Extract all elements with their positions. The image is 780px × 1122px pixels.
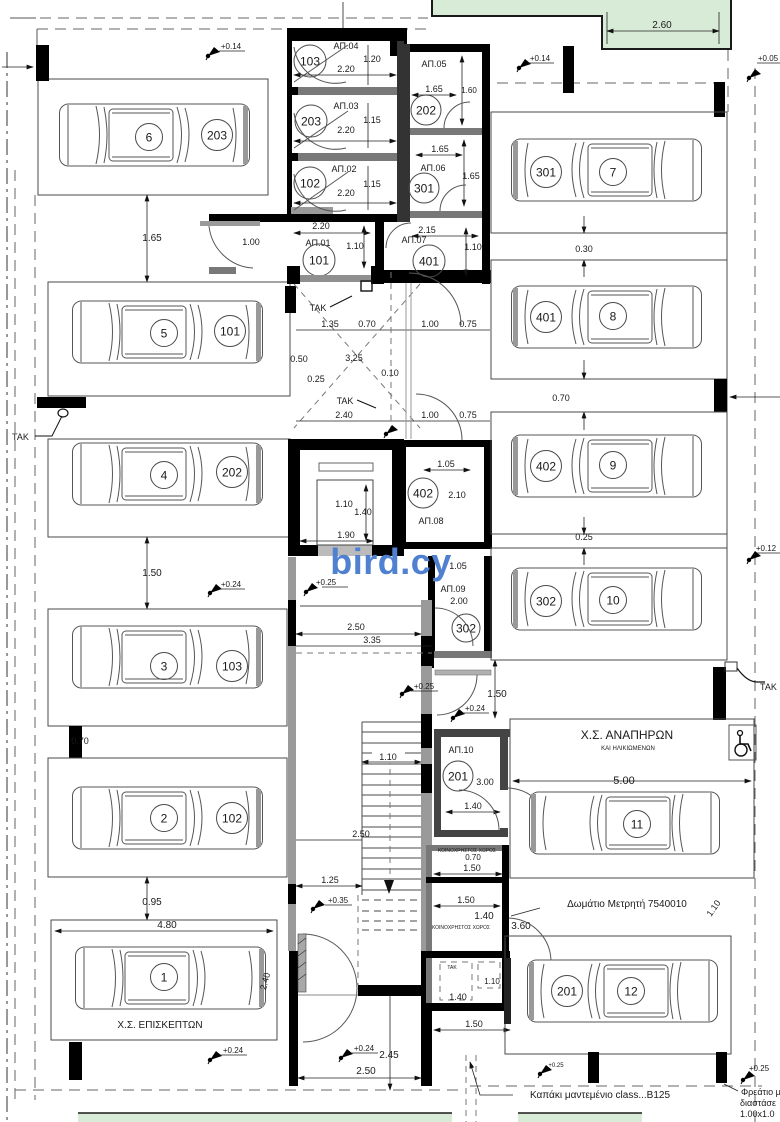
svg-text:1.50: 1.50	[457, 895, 475, 905]
svg-text:ΑΠ.06: ΑΠ.06	[420, 163, 445, 173]
svg-text:3: 3	[161, 660, 168, 674]
svg-text:+0.24: +0.24	[223, 1046, 244, 1055]
svg-text:1.15: 1.15	[363, 115, 381, 125]
svg-text:0.75: 0.75	[459, 410, 477, 420]
svg-text:2: 2	[161, 812, 168, 826]
svg-text:+0.35: +0.35	[328, 896, 349, 905]
svg-text:2.00: 2.00	[450, 596, 468, 606]
svg-text:2.20: 2.20	[337, 188, 355, 198]
svg-text:8: 8	[610, 310, 617, 324]
svg-text:ΚΑΙ ΗΛΙΚΙΩΜΕΝΩΝ: ΚΑΙ ΗΛΙΚΙΩΜΕΝΩΝ	[601, 746, 655, 752]
svg-text:201: 201	[557, 985, 577, 999]
svg-text:bird.cy: bird.cy	[330, 541, 452, 582]
svg-text:1.50: 1.50	[465, 1019, 483, 1029]
svg-text:4: 4	[161, 469, 168, 483]
svg-text:2.20: 2.20	[337, 125, 355, 135]
svg-text:Χ.Σ. ΑΝΑΠΗΡΩΝ: Χ.Σ. ΑΝΑΠΗΡΩΝ	[581, 728, 673, 742]
svg-text:1.65: 1.65	[431, 144, 449, 154]
svg-text:10: 10	[606, 594, 620, 608]
svg-text:1.15: 1.15	[363, 179, 381, 189]
svg-text:ΑΠ.08: ΑΠ.08	[418, 516, 443, 526]
svg-text:1.20: 1.20	[363, 54, 381, 64]
svg-text:0.70: 0.70	[552, 393, 570, 403]
svg-text:401: 401	[419, 255, 439, 269]
svg-text:7: 7	[610, 166, 617, 180]
svg-text:1.10: 1.10	[335, 499, 353, 509]
svg-text:+0.25: +0.25	[548, 1063, 564, 1069]
svg-text:102: 102	[300, 177, 320, 191]
svg-text:9: 9	[610, 459, 617, 473]
svg-text:ΚΟΙΝΟΧΡΗΣΤΟΣ ΧΩΡΟΣ: ΚΟΙΝΟΧΡΗΣΤΟΣ ΧΩΡΟΣ	[432, 925, 490, 931]
svg-text:+0.12: +0.12	[756, 544, 777, 553]
svg-text:4.80: 4.80	[157, 920, 177, 931]
svg-text:3.60: 3.60	[511, 921, 531, 932]
svg-text:+0.24: +0.24	[354, 1044, 375, 1053]
svg-text:διαστάσε: διαστάσε	[740, 1098, 776, 1108]
svg-text:201: 201	[448, 770, 468, 784]
svg-text:1.50: 1.50	[463, 863, 481, 873]
svg-text:203: 203	[301, 115, 321, 129]
svg-text:+0.25: +0.25	[749, 1064, 770, 1073]
svg-text:1.10: 1.10	[464, 242, 482, 252]
svg-text:2.50: 2.50	[352, 829, 370, 839]
svg-text:1.25: 1.25	[321, 875, 339, 885]
svg-text:1.65: 1.65	[462, 171, 480, 181]
svg-text:1.05: 1.05	[449, 561, 467, 571]
svg-text:5: 5	[161, 327, 168, 341]
svg-text:2.15: 2.15	[418, 225, 436, 235]
svg-text:+0.25: +0.25	[414, 682, 435, 691]
svg-text:103: 103	[222, 660, 242, 674]
svg-text:+0.05: +0.05	[758, 54, 779, 63]
svg-text:1: 1	[161, 971, 168, 985]
svg-text:2.20: 2.20	[312, 221, 330, 231]
svg-text:101: 101	[309, 254, 329, 268]
svg-text:0.75: 0.75	[459, 319, 477, 329]
svg-text:1.90: 1.90	[337, 530, 355, 540]
svg-text:Καπάκι μαντεμένιο class...Β125: Καπάκι μαντεμένιο class...Β125	[530, 1089, 671, 1101]
svg-text:1.05: 1.05	[437, 459, 455, 469]
svg-text:+0.24: +0.24	[465, 704, 486, 713]
svg-text:1.00x1.0: 1.00x1.0	[740, 1109, 775, 1119]
svg-text:3.25: 3.25	[345, 353, 363, 363]
svg-text:1.10: 1.10	[346, 241, 364, 251]
svg-text:Φρεάτιο μ: Φρεάτιο μ	[741, 1087, 780, 1097]
svg-text:Χ.Σ. ΕΠΙΣΚΕΠΤΩΝ: Χ.Σ. ΕΠΙΣΚΕΠΤΩΝ	[117, 1020, 202, 1031]
svg-text:102: 102	[222, 812, 242, 826]
svg-text:1.40: 1.40	[354, 507, 372, 517]
svg-text:2.10: 2.10	[448, 490, 466, 500]
svg-text:ΑΠ.09: ΑΠ.09	[440, 584, 465, 594]
svg-text:1.00: 1.00	[421, 410, 439, 420]
svg-text:1.40: 1.40	[464, 801, 482, 811]
svg-text:ΤΑΚ: ΤΑΚ	[12, 432, 29, 442]
svg-text:ΑΠ.05: ΑΠ.05	[421, 59, 446, 69]
svg-text:ΤΑΚ: ΤΑΚ	[760, 682, 777, 692]
svg-text:301: 301	[414, 182, 434, 196]
svg-text:ΑΠ.07: ΑΠ.07	[401, 235, 426, 245]
svg-text:1.40: 1.40	[449, 992, 467, 1002]
svg-text:ΤΑΚ: ΤΑΚ	[447, 965, 457, 971]
svg-text:0.70: 0.70	[358, 319, 376, 329]
svg-text:ΑΠ.02: ΑΠ.02	[331, 164, 356, 174]
svg-text:2.50: 2.50	[347, 622, 365, 632]
svg-text:203: 203	[207, 129, 227, 143]
svg-text:401: 401	[536, 311, 556, 325]
svg-text:402: 402	[413, 487, 433, 501]
svg-text:1.40: 1.40	[474, 911, 494, 922]
svg-text:ΤΑΚ: ΤΑΚ	[310, 303, 327, 313]
svg-text:402: 402	[536, 460, 556, 474]
svg-text:202: 202	[416, 104, 436, 118]
svg-text:1.50: 1.50	[487, 689, 507, 700]
svg-text:12: 12	[624, 985, 638, 999]
svg-text:6: 6	[146, 131, 153, 145]
svg-text:0.30: 0.30	[575, 244, 593, 254]
svg-text:1.10: 1.10	[379, 752, 397, 762]
svg-text:302: 302	[536, 595, 556, 609]
svg-text:1.60: 1.60	[461, 86, 477, 95]
svg-text:0.50: 0.50	[290, 354, 308, 364]
svg-text:0.70: 0.70	[71, 736, 89, 746]
svg-text:5.00: 5.00	[613, 775, 634, 787]
svg-text:3.35: 3.35	[363, 635, 381, 645]
svg-text:+0.14: +0.14	[530, 54, 551, 63]
svg-text:+0.14: +0.14	[221, 42, 242, 51]
svg-text:1.35: 1.35	[321, 319, 339, 329]
svg-text:+0.24: +0.24	[221, 580, 242, 589]
svg-text:1.00: 1.00	[242, 237, 260, 247]
svg-text:1.50: 1.50	[142, 568, 162, 579]
svg-text:Δωμάτιο Μετρητή 7540010: Δωμάτιο Μετρητή 7540010	[567, 898, 687, 910]
svg-text:0.10: 0.10	[381, 368, 399, 378]
svg-text:1.10: 1.10	[484, 977, 500, 986]
svg-text:ΑΠ.10: ΑΠ.10	[448, 745, 473, 755]
svg-text:0.70: 0.70	[465, 853, 481, 862]
svg-text:0.25: 0.25	[307, 374, 325, 384]
svg-text:11: 11	[631, 818, 644, 832]
svg-text:2.60: 2.60	[652, 20, 672, 31]
svg-text:3.00: 3.00	[476, 777, 494, 787]
svg-text:2.40: 2.40	[335, 410, 353, 420]
svg-text:301: 301	[536, 166, 556, 180]
svg-text:2.20: 2.20	[337, 64, 355, 74]
svg-text:ΑΠ.03: ΑΠ.03	[333, 101, 358, 111]
svg-text:0.95: 0.95	[142, 897, 162, 908]
svg-text:2.50: 2.50	[356, 1066, 376, 1077]
svg-text:2.45: 2.45	[379, 1050, 399, 1061]
svg-text:1.00: 1.00	[421, 319, 439, 329]
svg-text:202: 202	[222, 466, 242, 480]
svg-text:1.65: 1.65	[425, 84, 443, 94]
svg-text:101: 101	[220, 325, 240, 339]
svg-text:1.65: 1.65	[142, 233, 162, 244]
svg-text:ΤΑΚ: ΤΑΚ	[337, 396, 354, 406]
